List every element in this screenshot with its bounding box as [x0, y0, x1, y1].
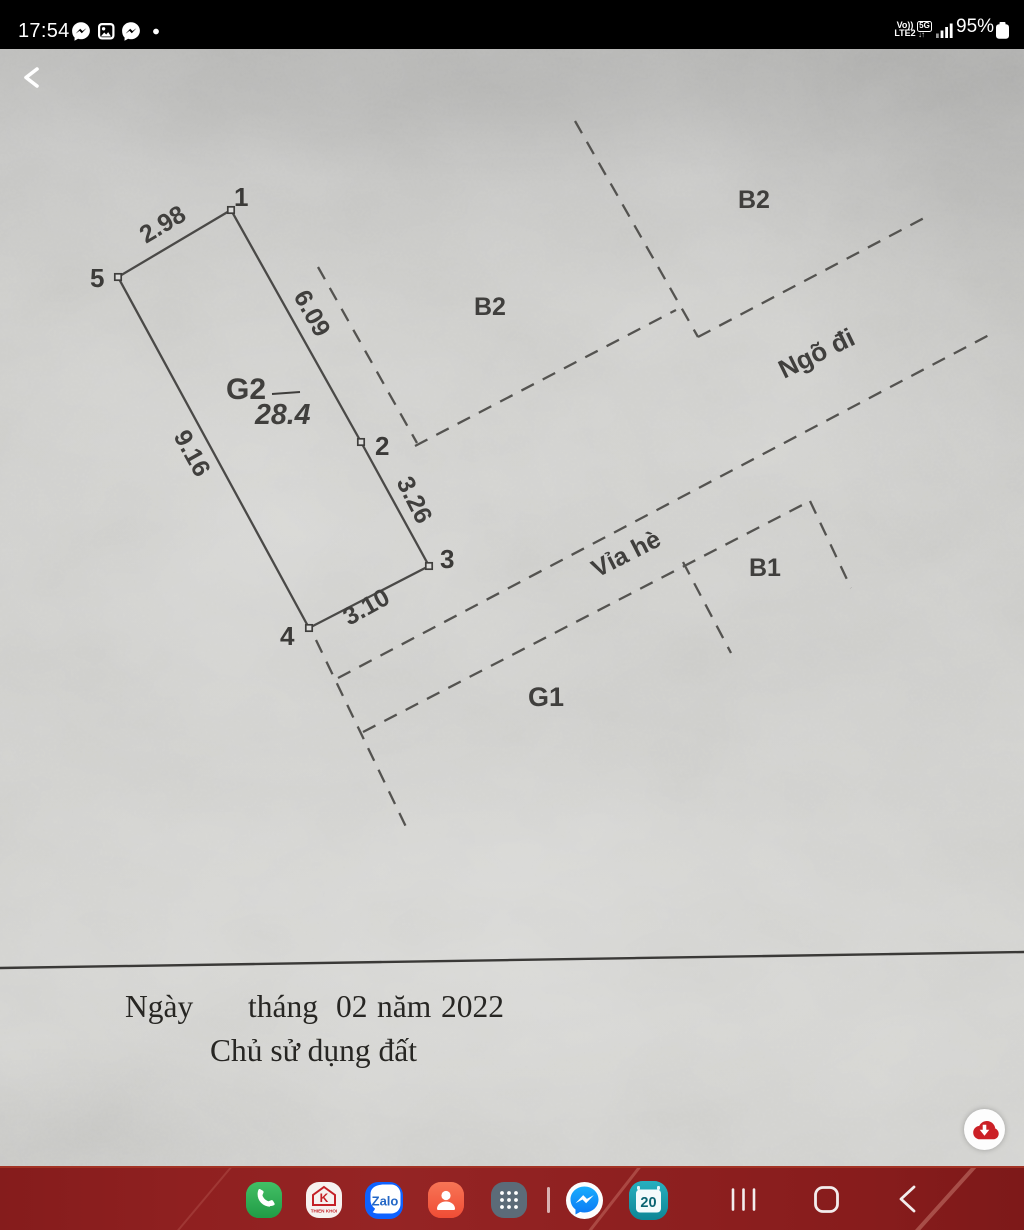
svg-text:20: 20 [640, 1195, 656, 1211]
svg-text:K: K [320, 1191, 329, 1205]
svg-text:Zalo: Zalo [372, 1193, 399, 1208]
svg-text:THIEN KHOI: THIEN KHOI [311, 1209, 338, 1214]
